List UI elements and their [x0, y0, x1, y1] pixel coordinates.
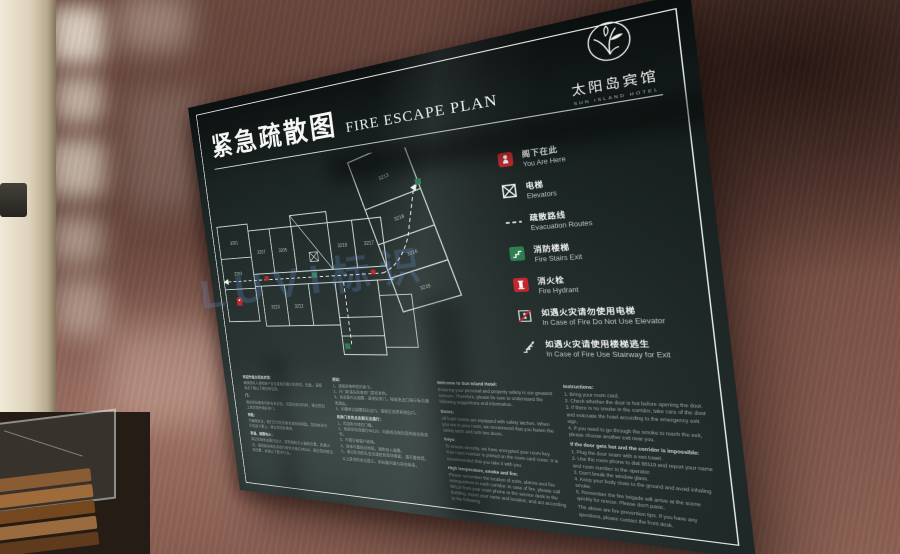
- legend-item-evacuation-routes: 疏散路线Evacuation Routes: [505, 196, 702, 235]
- svg-text:3213: 3213: [378, 172, 390, 181]
- stair-exit-icon: [520, 339, 539, 359]
- window-reflection: [108, 326, 234, 422]
- route-icon: [505, 214, 524, 236]
- notice-col-en-1: Welcome to Sun Island Hotel: Ensuring yo…: [436, 377, 569, 522]
- door-hinge: [0, 183, 27, 217]
- notice-col-cn-1: 欢迎光临太阳岛宾馆： 确保您的人身和财产安全是我们最大的关切。因此，请您务必了解…: [242, 372, 339, 493]
- svg-text:3207: 3207: [257, 250, 266, 255]
- wood-planks: [0, 468, 101, 554]
- svg-text:3215: 3215: [419, 283, 431, 291]
- fire-stairs-icon: [509, 245, 528, 267]
- notice-col-en-2: Instructions: 1. Bring your room card. 2…: [562, 380, 721, 541]
- window-reflection: [118, 0, 190, 52]
- svg-text:3212: 3212: [294, 304, 304, 309]
- legend-item-use-stairway: 如遇火灾请使用楼梯逃生In Case of Fire Use Stairway …: [520, 338, 718, 361]
- hotel-logo-icon: [579, 12, 641, 71]
- room-labels: 3213 3218 3216 3215 3219 3217 3205 3207 …: [224, 168, 434, 310]
- bottom-left-clutter: [0, 412, 150, 554]
- window-reflection: [52, 214, 102, 264]
- window-reflection: [55, 278, 107, 336]
- sign-panel: 太阳岛宾馆 SUN ISLAND HOTEL 紧急疏散图 FIRE ESCAPE…: [188, 0, 756, 554]
- svg-text:3219: 3219: [337, 243, 347, 249]
- safety-notices: 欢迎光临太阳岛宾馆： 确保您的人身和财产安全是我们最大的关切。因此，请您务必了解…: [242, 372, 721, 541]
- no-elevator-icon: [516, 308, 535, 329]
- evacuation-route-line: [219, 187, 434, 347]
- legend-item-no-elevator: 如遇火灾请勿使用电梯In Case of Fire Do Not Use Ele…: [516, 303, 713, 328]
- svg-text:3216: 3216: [406, 248, 418, 257]
- window-reflection: [52, 6, 104, 64]
- photo-scene: 太阳岛宾馆 SUN ISLAND HOTEL 紧急疏散图 FIRE ESCAPE…: [0, 0, 900, 554]
- svg-text:3205: 3205: [278, 248, 287, 254]
- hydrant-marker: [371, 270, 376, 275]
- legend-item-fire-hydrant: 消火栓Fire Hydrant: [513, 268, 710, 298]
- window-reflection: [55, 76, 103, 124]
- stairs-marker: [345, 343, 351, 349]
- fire-escape-sign: 太阳岛宾馆 SUN ISLAND HOTEL 紧急疏散图 FIRE ESCAPE…: [188, 0, 756, 554]
- title-english: FIRE ESCAPE PLAN: [345, 92, 499, 137]
- you-are-here-marker: [236, 298, 242, 306]
- svg-text:3218: 3218: [393, 213, 405, 222]
- legend: 阁下在此You Are Here 电梯Elevators 疏散路线Evacuat…: [497, 125, 719, 374]
- title-chinese: 紧急疏散图: [209, 102, 339, 164]
- legend-item-fire-stairs: 消防楼梯Fire Stairs Exit: [509, 232, 706, 267]
- notice-col-cn-2: 须知： 1、请随身携带您的房卡。 2、开门前请先检查房门是否发热。 3、如走廊内…: [331, 374, 444, 506]
- you-are-here-icon: [497, 150, 516, 173]
- floor-plan: 3213 3218 3216 3215 3219 3217 3205 3207 …: [205, 135, 510, 366]
- stairs-marker: [415, 178, 422, 185]
- hydrant-icon: [513, 276, 532, 297]
- svg-text:3210: 3210: [271, 305, 280, 310]
- svg-text:3217: 3217: [364, 240, 375, 246]
- stairs-marker: [312, 272, 318, 278]
- elevator-icon: [501, 182, 520, 204]
- svg-text:3201: 3201: [230, 241, 239, 246]
- svg-text:3203: 3203: [234, 272, 243, 277]
- door-frame-strip: [0, 0, 56, 430]
- window-reflection: [50, 138, 105, 198]
- hydrant-marker: [265, 276, 269, 281]
